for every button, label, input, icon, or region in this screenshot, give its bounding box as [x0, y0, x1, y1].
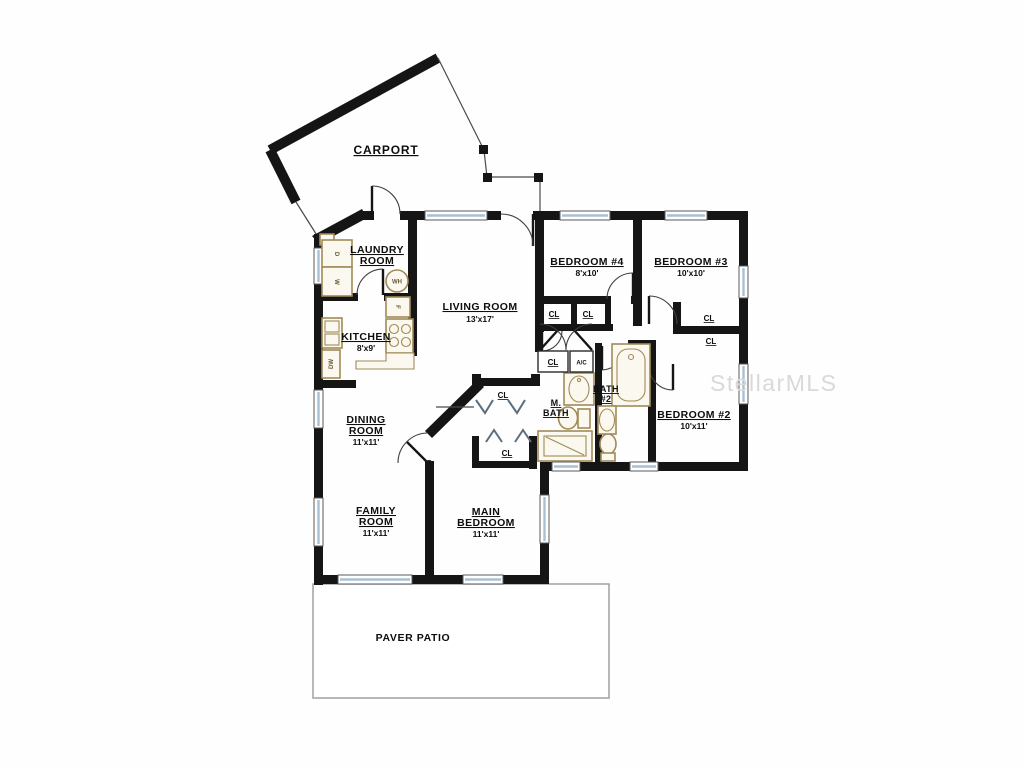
dining-window	[314, 390, 323, 428]
closet-label: CL	[704, 314, 715, 323]
closet-label: CL	[498, 391, 509, 400]
main-bedroom-door	[398, 433, 433, 468]
refrigerator-label: F	[394, 305, 400, 309]
room-label-bath2-2: #2	[601, 394, 612, 404]
room-label-family-2: ROOM	[359, 516, 393, 528]
carport-entry-door	[372, 186, 400, 214]
front-door	[501, 214, 533, 246]
floor-plan-drawing: CARPORT LAUNDRY ROOM KITCHEN 8'x9' LIVIN…	[0, 0, 1024, 768]
bedroom3-top-window	[665, 211, 707, 220]
main-bedroom-slider-door	[463, 575, 503, 584]
bedroom4-window	[560, 211, 610, 220]
closet-label: CL	[706, 337, 717, 346]
closet-rod	[476, 400, 493, 413]
mbath-sink	[564, 373, 594, 405]
bedroom3-door	[649, 296, 677, 324]
room-dims-bedroom3: 10'x10'	[677, 268, 705, 278]
room-dims-bedroom2: 10'x11'	[680, 421, 707, 431]
room-dims-bedroom4: 8'x10'	[576, 268, 599, 278]
room-dims-mainbed: 11'x11'	[473, 529, 500, 539]
dishwasher-label: DW	[329, 359, 335, 369]
room-label-bedroom4: BEDROOM #4	[550, 256, 623, 268]
room-dims-kitchen: 8'x9'	[357, 343, 375, 353]
closet-label: CL	[548, 358, 559, 367]
closet-label: CL	[549, 310, 560, 319]
dryer-label: D	[333, 252, 339, 257]
closet-rod	[515, 430, 531, 442]
bedroom4-door	[607, 273, 633, 299]
room-label-living: LIVING ROOM	[443, 301, 518, 313]
kitchen-counter	[356, 353, 414, 369]
closet-door-bedroom4	[542, 331, 562, 351]
room-label-bedroom3: BEDROOM #3	[654, 256, 727, 268]
room-dims-dining: 11'x11'	[353, 437, 380, 447]
room-label-mainbed-2: BEDROOM	[457, 517, 515, 529]
closet-rod	[486, 430, 502, 442]
room-label-dining-2: ROOM	[349, 425, 383, 437]
laundry-door	[357, 269, 383, 295]
floor-plan-page: CARPORT LAUNDRY ROOM KITCHEN 8'x9' LIVIN…	[0, 0, 1024, 768]
bath2-tub	[612, 344, 650, 406]
room-label-bath2-1: BATH	[593, 384, 619, 394]
living-window	[425, 211, 487, 220]
patio-outline	[313, 584, 609, 698]
room-dims-family: 11'x11'	[363, 528, 390, 538]
room-label-bedroom2: BEDROOM #2	[657, 409, 730, 421]
bedroom3-side-window	[739, 266, 748, 298]
family-window	[314, 498, 323, 546]
closet-label: CL	[502, 449, 513, 458]
washer-label: W	[333, 279, 339, 285]
kitchen-sink	[322, 318, 342, 348]
ac-closet-label: A/C	[576, 361, 587, 367]
family-slider-door	[338, 575, 412, 584]
room-label-mbath-2: BATH	[543, 408, 569, 418]
bath2-sink	[598, 406, 616, 434]
room-label-laundry-2: ROOM	[360, 255, 394, 267]
room-dims-living: 13'x17'	[466, 314, 494, 324]
closet-rod	[508, 400, 525, 413]
main-bedroom-window	[540, 495, 549, 543]
room-label-mbath-1: M.	[551, 398, 562, 408]
room-label-patio: PAVER PATIO	[376, 632, 451, 644]
room-label-carport: CARPORT	[354, 143, 419, 157]
water-heater-label: WH	[392, 280, 402, 286]
mbath-shower	[538, 431, 592, 461]
room-label-kitchen: KITCHEN	[341, 331, 390, 343]
bedroom2-bottom-window	[630, 462, 658, 471]
bath2-toilet	[600, 434, 616, 461]
closet-label: CL	[583, 310, 594, 319]
watermark: StellarMLS	[710, 370, 837, 396]
mbath-window	[552, 462, 580, 471]
